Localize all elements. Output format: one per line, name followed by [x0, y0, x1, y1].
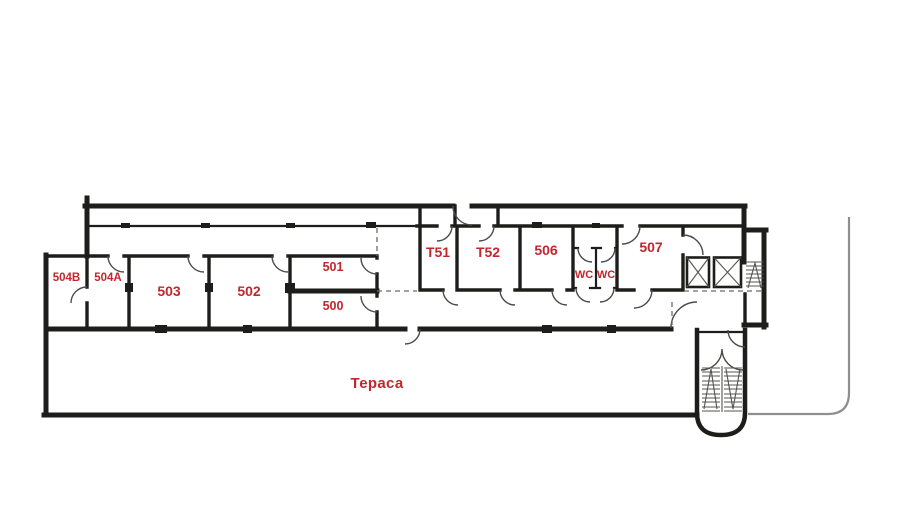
walls — [44, 198, 766, 435]
room-label-500: 500 — [323, 299, 344, 313]
column-tick — [205, 283, 213, 292]
room-label-t52: T52 — [476, 244, 500, 260]
room-label-wc-right: WC — [597, 269, 615, 281]
room-label-507: 507 — [639, 239, 663, 255]
elevator-shaft-left-icon — [687, 258, 709, 288]
dashed-guide-lines — [377, 228, 764, 328]
column-tick — [366, 222, 376, 228]
room-label-502: 502 — [237, 283, 261, 299]
room-label-t51: T51 — [426, 244, 450, 260]
floor-plan-canvas: 504B 504A 503 502 501 500 T51 T52 506 WC… — [0, 0, 920, 518]
elevator-shaft-right-icon — [714, 258, 741, 288]
side-staircase-icon — [746, 262, 764, 288]
room-label-503: 503 — [157, 283, 181, 299]
inner-walls — [46, 206, 745, 329]
column-tick — [592, 223, 600, 228]
column-tick — [542, 325, 552, 333]
outer-walls — [44, 198, 766, 415]
column-tick — [125, 283, 133, 292]
column-tick — [201, 223, 210, 228]
terrace-label: Тераса — [351, 375, 404, 392]
room-label-501: 501 — [323, 260, 344, 274]
room-label-wc-left: WC — [575, 269, 593, 281]
dashed-guides — [377, 228, 764, 328]
column-tick — [285, 283, 295, 293]
column-tick — [607, 325, 616, 333]
room-label-504b: 504B — [53, 272, 81, 284]
tower-staircase-icon — [702, 366, 742, 412]
room-label-506: 506 — [534, 242, 558, 258]
column-ticks — [121, 222, 616, 333]
column-tick — [243, 325, 252, 333]
column-tick — [532, 222, 542, 228]
floor-plan: 504B 504A 503 502 501 500 T51 T52 506 WC… — [0, 0, 920, 518]
column-tick — [155, 325, 167, 333]
column-tick — [121, 223, 130, 228]
column-tick — [286, 223, 295, 228]
room-label-504a: 504A — [94, 272, 122, 284]
